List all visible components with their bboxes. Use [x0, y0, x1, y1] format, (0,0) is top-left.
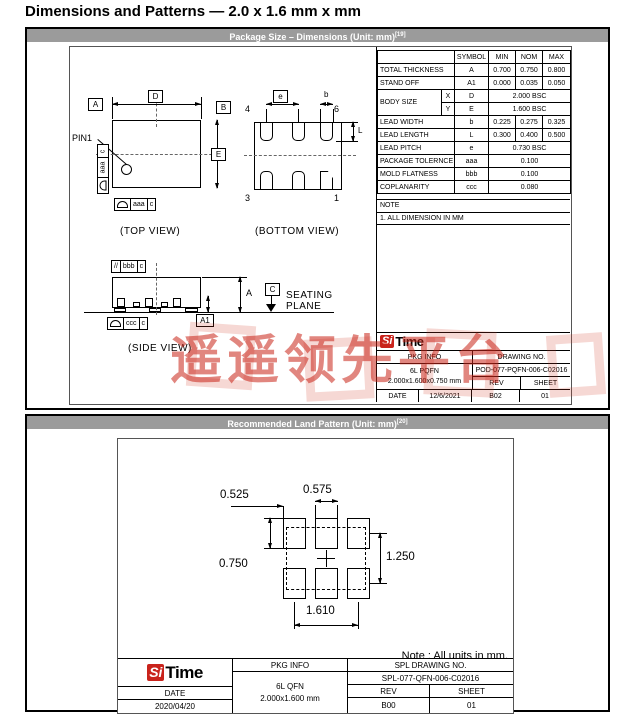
dim-label-e-pitch: e: [273, 90, 288, 103]
rev-value: B00: [348, 698, 430, 713]
extension-line: [298, 109, 299, 122]
dimension-line-l: [353, 122, 354, 141]
extension-line: [358, 602, 359, 629]
pkg-info-column: PKG INFO 6L QFN 2.000x1.600 mm: [233, 659, 348, 713]
dim-0575: 0.575: [303, 484, 332, 496]
sheet-label: SHEET: [430, 685, 513, 697]
gdt-text-bbb: bbb: [120, 260, 138, 273]
gdt-text-c: c: [147, 198, 157, 211]
param-max: 0.325: [543, 116, 571, 129]
dim-1250: 1.250: [386, 551, 415, 563]
datum-label-a: A: [88, 98, 103, 111]
param-symbol: A: [455, 64, 489, 77]
dimensions-table: SYMBOLMINNOMMAXTOTAL THICKNESSA0.7000.75…: [377, 50, 571, 194]
param-name: STAND OFF: [378, 77, 455, 90]
param-min: 0.700: [489, 64, 516, 77]
profile-symbol-cell: [114, 198, 131, 211]
dim-label-e: E: [211, 148, 226, 161]
datum-leader-line: [271, 295, 272, 304]
pad-2: [292, 171, 305, 190]
gdt-text-c: c: [139, 317, 149, 330]
rev-value: B02: [472, 390, 520, 402]
dim-table-row: BODY SIZEXD2.000 BSC: [378, 90, 571, 103]
header-blank: [378, 51, 455, 64]
sheet-value: 01: [430, 698, 513, 713]
logo-si: Si: [380, 335, 394, 348]
pkg-info-label: PKG INFO: [233, 659, 347, 672]
rev-label: REV: [348, 685, 430, 697]
param-symbol: aaa: [455, 155, 489, 168]
rev-sheet-header: REV SHEET: [348, 685, 513, 698]
sheet-value: 01: [520, 390, 570, 402]
param-axis: Y: [442, 103, 455, 116]
package-dimensions-header-bar: Package Size – Dimensions (Unit: mm)[19]: [27, 29, 608, 42]
header-2: MIN: [489, 51, 516, 64]
side-view-lead: [133, 302, 140, 307]
date-value: 12/6/2021: [419, 390, 472, 402]
drawing-no-cell: POD-077-PQFN-006-C02016 REV SHEET: [473, 364, 570, 389]
logo-si: Si: [147, 664, 164, 681]
param-axis: X: [442, 90, 455, 103]
logo-cell: SiTime: [118, 659, 232, 686]
header-1: SYMBOL: [455, 51, 489, 64]
dim-table-row: STAND OFFA10.0000.0350.050: [378, 77, 571, 90]
datasheet-page: { "page_title": "Dimensions and Patterns…: [0, 0, 626, 716]
datum-label-c: C: [265, 283, 280, 296]
land-pattern-header-text: Recommended Land Pattern (Unit: mm): [227, 419, 397, 429]
centerline: [156, 263, 157, 315]
param-name: LEAD WIDTH: [378, 116, 455, 129]
dim-table-row: LEAD LENGTHL0.3000.4000.500: [378, 129, 571, 142]
drawing-no-value: POD-077-PQFN-006-C02016: [473, 364, 570, 377]
dim-1610: 1.610: [306, 605, 335, 617]
dim-table-row: LEAD PITCHe0.730 BSC: [378, 142, 571, 155]
dim-label-d: D: [148, 90, 163, 103]
table-column: SYMBOLMINNOMMAXTOTAL THICKNESSA0.7000.75…: [376, 47, 570, 402]
pin-number-1: 1: [334, 193, 339, 203]
param-value: 0.730 BSC: [489, 142, 571, 155]
param-nom: 0.750: [516, 64, 543, 77]
dim-0525: 0.525: [220, 489, 249, 501]
param-symbol: b: [455, 116, 489, 129]
gdt-frame-aaa: aaa: [97, 157, 109, 178]
package-dimensions-drawing: Package Size – Dimensions (Unit: mm)[19]…: [25, 27, 610, 410]
extension-line: [315, 505, 316, 518]
param-symbol: L: [455, 129, 489, 142]
pkg-line2: 2.000x1.600 mm: [260, 693, 320, 704]
rev-label: REV: [473, 377, 521, 389]
header-3: NOM: [516, 51, 543, 64]
gdt-frame-profile: [97, 177, 109, 194]
pin-number-6: 6: [334, 104, 339, 114]
sitime-logo: SiTime: [380, 334, 424, 349]
logo-cell: SiTime: [377, 333, 570, 350]
param-value: 1.600 BSC: [489, 103, 571, 116]
side-view-lead: [145, 298, 153, 307]
param-symbol: e: [455, 142, 489, 155]
pad-5: [292, 122, 305, 141]
param-name: LEAD PITCH: [378, 142, 455, 155]
side-view-lead: [173, 298, 181, 307]
logo-row: SiTime: [377, 333, 570, 350]
param-max: 0.050: [543, 77, 571, 90]
profile-symbol-icon: [110, 320, 121, 327]
package-dimensions-header-text: Package Size – Dimensions (Unit: mm): [229, 32, 395, 42]
param-min: 0.300: [489, 129, 516, 142]
pkg-info-cell: 6L PQFN 2.000x1.600x0.750 mm: [377, 364, 473, 389]
dim-table-row: COPLANARITYccc0.080: [378, 181, 571, 194]
param-max: 0.500: [543, 129, 571, 142]
extension-line: [266, 109, 267, 122]
header-4: MAX: [543, 51, 571, 64]
dim-label-b: b: [324, 90, 328, 99]
footnote-ref-19: [19]: [395, 32, 406, 38]
dimension-line-d: [112, 104, 201, 105]
dimension-line-0750: [270, 518, 271, 548]
date-label: DATE: [377, 390, 419, 402]
spl-column: SPL DRAWING NO. SPL-077-QFN-006-C02016 R…: [348, 659, 513, 713]
dim-label-a: A: [246, 288, 252, 298]
extension-line: [283, 506, 284, 518]
dim-0750: 0.750: [219, 558, 248, 570]
param-name: BODY SIZE: [378, 90, 442, 116]
datum-triangle-icon: [266, 304, 276, 312]
land-pattern-header-bar: Recommended Land Pattern (Unit: mm)[20]: [27, 416, 608, 429]
side-view-caption: (SIDE VIEW): [128, 343, 192, 354]
logo-time: Time: [165, 663, 202, 683]
dimension-line-1610: [294, 625, 358, 626]
param-symbol: ccc: [455, 181, 489, 194]
date-row: DATE 12/6/2021 B02 01: [377, 389, 570, 402]
param-nom: 0.400: [516, 129, 543, 142]
param-symbol: A1: [455, 77, 489, 90]
seating-plane-label-1: SEATING: [286, 290, 333, 301]
land-pattern-drawing: Recommended Land Pattern (Unit: mm)[20] …: [25, 414, 610, 712]
centerline: [244, 155, 356, 156]
top-view-caption: (TOP VIEW): [120, 226, 180, 237]
rev-sheet-header: REV SHEET: [473, 377, 570, 389]
sheet-label: SHEET: [521, 377, 570, 389]
pad-6: [320, 122, 333, 141]
title-block: SiTime PKG INFO DRAWING NO. 6L PQFN 2.00…: [377, 332, 570, 402]
gdt-frame-c: c: [97, 144, 109, 158]
param-min: 0.225: [489, 116, 516, 129]
datum-label-b: B: [216, 101, 231, 114]
land-title-block: SiTime DATE 2020/04/20 PKG INFO 6L QFN 2…: [118, 658, 513, 713]
param-value: 0.080: [489, 181, 571, 194]
spl-drawing-no-value: SPL-077-QFN-006-C02016: [348, 672, 513, 685]
rev-sheet-values: B00 01: [348, 698, 513, 713]
center-mark: [317, 558, 335, 559]
logo-date-column: SiTime DATE 2020/04/20: [118, 659, 233, 713]
dimension-line-0575: [315, 501, 338, 502]
gdt-text-ccc: ccc: [123, 317, 140, 330]
param-max: 0.800: [543, 64, 571, 77]
dimension-line-0525: [231, 506, 283, 507]
profile-symbol-icon: [100, 181, 107, 191]
dimension-line-a: [240, 277, 241, 312]
header-row: PKG INFO DRAWING NO.: [377, 350, 570, 363]
logo-time: Time: [395, 334, 423, 349]
extension-line: [201, 97, 202, 119]
pkg-line2: 2.000x1.600x0.750 mm: [388, 377, 461, 386]
param-name: MOLD FLATNESS: [378, 168, 455, 181]
dim-label-l: L: [358, 126, 362, 135]
param-name: PACKAGE TOLERNCE: [378, 155, 455, 168]
gdt-text-c: c: [100, 149, 107, 153]
pad-4: [260, 122, 273, 141]
profile-symbol-cell: [107, 317, 124, 330]
param-value: 2.000 BSC: [489, 90, 571, 103]
sitime-logo: SiTime: [147, 663, 203, 683]
pin-number-4: 4: [245, 104, 250, 114]
extension-line: [264, 518, 283, 519]
pkg-line1: 6L PQFN: [410, 367, 439, 376]
extension-line: [264, 548, 283, 549]
dimension-line-e-pitch: [266, 104, 299, 105]
param-name: COPLANARITY: [378, 181, 455, 194]
pad-3: [260, 171, 273, 190]
extension-line: [337, 505, 338, 518]
note-body: 1. ALL DIMENSION IN MM: [377, 212, 570, 225]
param-symbol: bbb: [455, 168, 489, 181]
bottom-view-caption: (BOTTOM VIEW): [255, 226, 339, 237]
param-name: TOTAL THICKNESS: [378, 64, 455, 77]
footnote-ref-20: [20]: [397, 419, 408, 425]
param-min: 0.000: [489, 77, 516, 90]
dimension-line-1250: [380, 533, 381, 583]
param-name: LEAD LENGTH: [378, 129, 455, 142]
param-symbol: D: [455, 90, 489, 103]
side-view-lead: [161, 302, 168, 307]
drawing-no-label: DRAWING NO.: [473, 351, 570, 363]
date-value: 2020/04/20: [118, 699, 232, 713]
dim-table-header-row: SYMBOLMINNOMMAX: [378, 51, 571, 64]
note-title: NOTE: [377, 199, 570, 212]
param-symbol: E: [455, 103, 489, 116]
pkg-info-label: PKG INFO: [377, 351, 473, 363]
date-label: DATE: [118, 686, 232, 699]
gdt-frame-bottom: aaa c: [115, 198, 156, 211]
pin1-label: PIN1: [72, 133, 92, 143]
dim-table-row: MOLD FLATNESSbbb0.100: [378, 168, 571, 181]
dim-table-row: PACKAGE TOLERNCEaaa0.100: [378, 155, 571, 168]
pkg-info-cell: 6L QFN 2.000x1.600 mm: [233, 672, 347, 713]
side-view-lead: [117, 298, 125, 307]
extension-line: [112, 97, 113, 119]
page-title: Dimensions and Patterns — 2.0 x 1.6 mm x…: [25, 3, 361, 20]
profile-symbol-icon: [117, 201, 128, 208]
param-value: 0.100: [489, 155, 571, 168]
dim-table-row: LEAD WIDTHb0.2250.2750.325: [378, 116, 571, 129]
extension-line: [320, 109, 321, 122]
gdt-text-aaa: aaa: [100, 162, 107, 174]
gdt-text-aaa: aaa: [130, 198, 148, 211]
drawing-frame: D A B E PIN1 c aaa aaa c (TOP VIEW) e b: [69, 46, 572, 405]
pin1-marker-icon: [121, 164, 132, 175]
dimension-line-b: [320, 104, 333, 105]
note-section: NOTE 1. ALL DIMENSION IN MM: [377, 199, 570, 225]
gdt-frame-parallelism: // bbb c: [112, 260, 146, 273]
pin-number-3: 3: [245, 193, 250, 203]
info-row: 6L PQFN 2.000x1.600x0.750 mm POD-077-PQF…: [377, 363, 570, 389]
param-value: 0.100: [489, 168, 571, 181]
spl-drawing-no-label: SPL DRAWING NO.: [348, 659, 513, 672]
dim-table-row: TOTAL THICKNESSA0.7000.7500.800: [378, 64, 571, 77]
gdt-text-c: c: [137, 260, 147, 273]
dimension-line-a1: [208, 296, 209, 312]
dim-label-a1: A1: [196, 314, 214, 327]
pkg-line1: 6L QFN: [276, 681, 304, 692]
land-pattern-frame: 0.575 0.525 0.750 1.250 1.610 Note : All…: [117, 438, 514, 714]
param-nom: 0.035: [516, 77, 543, 90]
param-nom: 0.275: [516, 116, 543, 129]
seating-plane-label-2: PLANE: [286, 301, 321, 312]
gdt-frame-coplanarity: ccc c: [108, 317, 148, 330]
